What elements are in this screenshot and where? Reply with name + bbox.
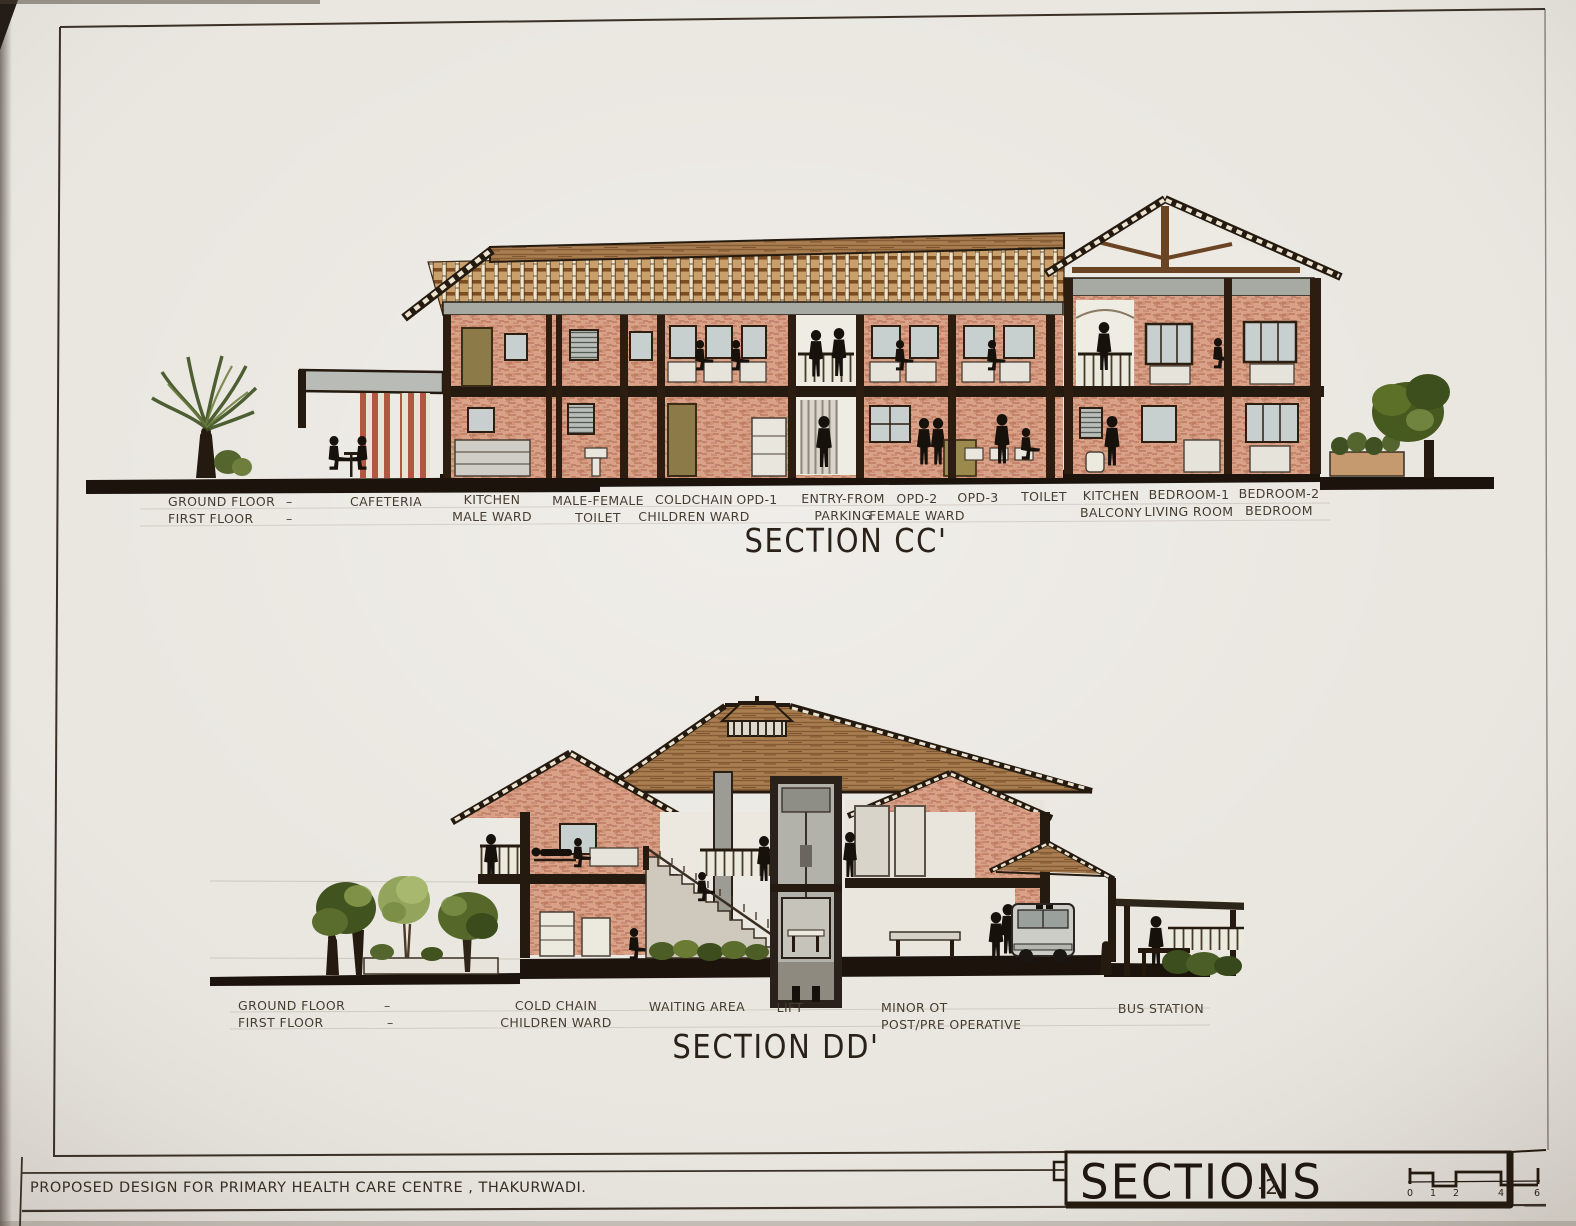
cc-room-label-opd-3: OPD-3 [957,490,998,507]
lift-shaft [770,776,842,1008]
dd-room-label-minor-ot: MINOR OTPOST/PRE OPERATIVE [881,1000,1021,1033]
scale-tick-2: 2 [1453,1188,1459,1199]
dd-ground-floor-dash: – [384,998,391,1013]
sheet-number: -2 [1258,1175,1278,1199]
cc-room-label-kitchen-balcony: KITCHENBALCONY [1080,488,1142,521]
cc-room-label-coldchain-children-ward: COLDCHAINCHILDREN WARD [638,492,749,525]
dd-room-label-cold-chain-children-ward: COLD CHAINCHILDREN WARD [500,998,611,1031]
dd-floor-legend-row1: GROUND FLOOR – [238,998,345,1013]
dd-first-floor-dash: – [387,1015,394,1030]
cc-room-label-male-female-toilet: MALE-FEMALETOILET [552,493,644,526]
title-block-title: SECTIONS [1080,1154,1323,1210]
dd-room-label-waiting-area: WAITING AREA [649,999,745,1016]
cc-first-floor-dash: – [286,511,293,526]
cc-room-label-kitchen-male-ward: KITCHENMALE WARD [452,492,532,525]
section-cc-title: SECTION CC' [744,522,947,560]
cc-main-block [443,302,1063,478]
cc-room-label-bedroom-2-bedroom: BEDROOM-2BEDROOM [1239,486,1320,519]
dd-floor-legend-row2: FIRST FLOOR – [238,1015,324,1030]
section-dd-title: SECTION DD' [672,1028,879,1066]
scale-tick-1: 1 [1430,1188,1436,1199]
cc-room-label-cafeteria: CAFETERIA [350,494,422,511]
cc-room-label-opd-1: OPD-1 [736,492,777,509]
cc-room-label-toilet: TOILET [1021,489,1067,506]
cc-floor-legend-row2: FIRST FLOOR – [168,511,254,526]
scale-tick-4: 4 [1498,1188,1504,1199]
van [1012,904,1074,963]
scale-tick-6: 6 [1534,1188,1540,1199]
cc-floor-legend-row1: GROUND FLOOR – [168,494,275,509]
cc-first-floor-label: FIRST FLOOR [168,511,254,526]
cc-ground-floor-dash: – [286,494,293,509]
cc-room-label-bedroom-1-living-room: BEDROOM-1LIVING ROOM [1145,487,1234,520]
cc-ground-floor-label: GROUND FLOOR [168,494,275,509]
scale-tick-0: 0 [1407,1188,1413,1199]
project-caption: PROPOSED DESIGN FOR PRIMARY HEALTH CARE … [30,1180,586,1196]
cc-room-label-opd-2-female-ward: OPD-2FEMALE WARD [869,491,965,524]
dd-first-floor-label: FIRST FLOOR [238,1015,324,1030]
dd-room-label-bus-station: BUS STATION [1118,1001,1204,1018]
dd-room-label-lift: LIFT [777,1000,804,1017]
drawing-sheet: GROUND FLOOR – FIRST FLOOR – CAFETERIA K… [0,0,1576,1226]
dd-ground-floor-label: GROUND FLOOR [238,998,345,1013]
